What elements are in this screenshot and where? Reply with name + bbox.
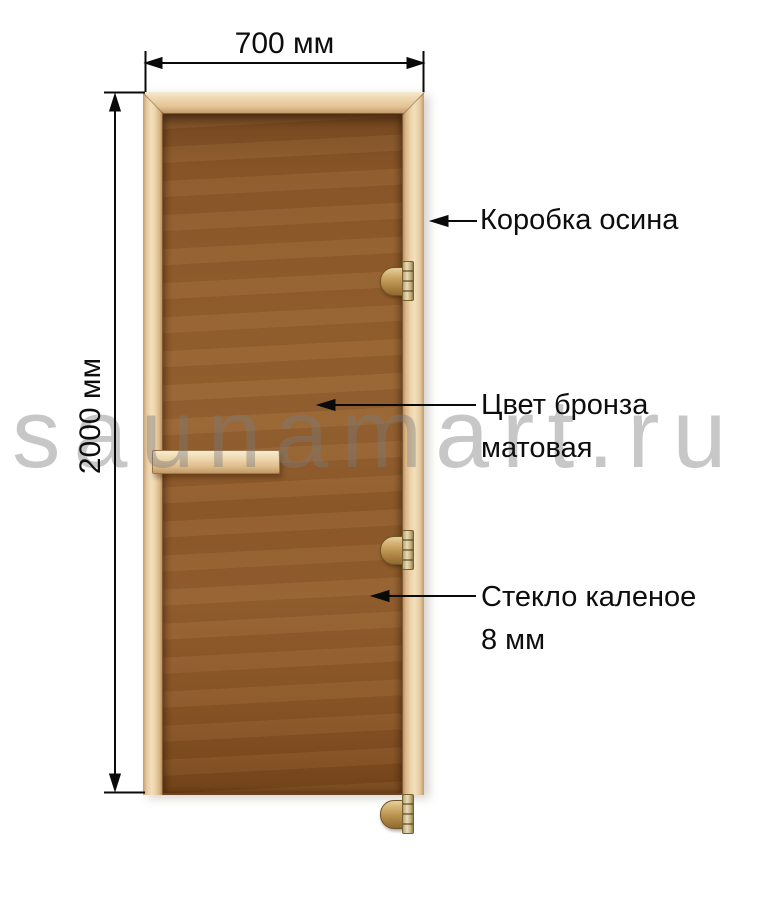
annotation-frame-material: Коробка осина <box>480 199 678 242</box>
annotation-glass-type: Стекло каленое 8 мм <box>481 576 696 662</box>
annotation-text: матовая <box>481 427 648 470</box>
color-annotation-arrowhead-icon <box>318 400 336 411</box>
annotation-text: Коробка осина <box>480 199 678 242</box>
width-dimension-label: 700 мм <box>145 27 424 61</box>
annotation-glass-color: Цвет бронза матовая <box>481 384 648 470</box>
glass-annotation-arrowhead-icon <box>372 591 390 602</box>
arrowhead-down-icon <box>110 774 121 791</box>
height-dimension-label: 2000 мм <box>71 321 111 511</box>
frame-annotation-arrowhead-icon <box>431 216 449 227</box>
annotation-text: 8 мм <box>481 619 696 662</box>
arrowhead-up-icon <box>110 94 121 111</box>
annotation-text: Стекло каленое <box>481 576 696 619</box>
annotation-text: Цвет бронза <box>481 384 648 427</box>
product-diagram-canvas: saunamart.ru 700 мм 2000 мм <box>0 0 762 900</box>
